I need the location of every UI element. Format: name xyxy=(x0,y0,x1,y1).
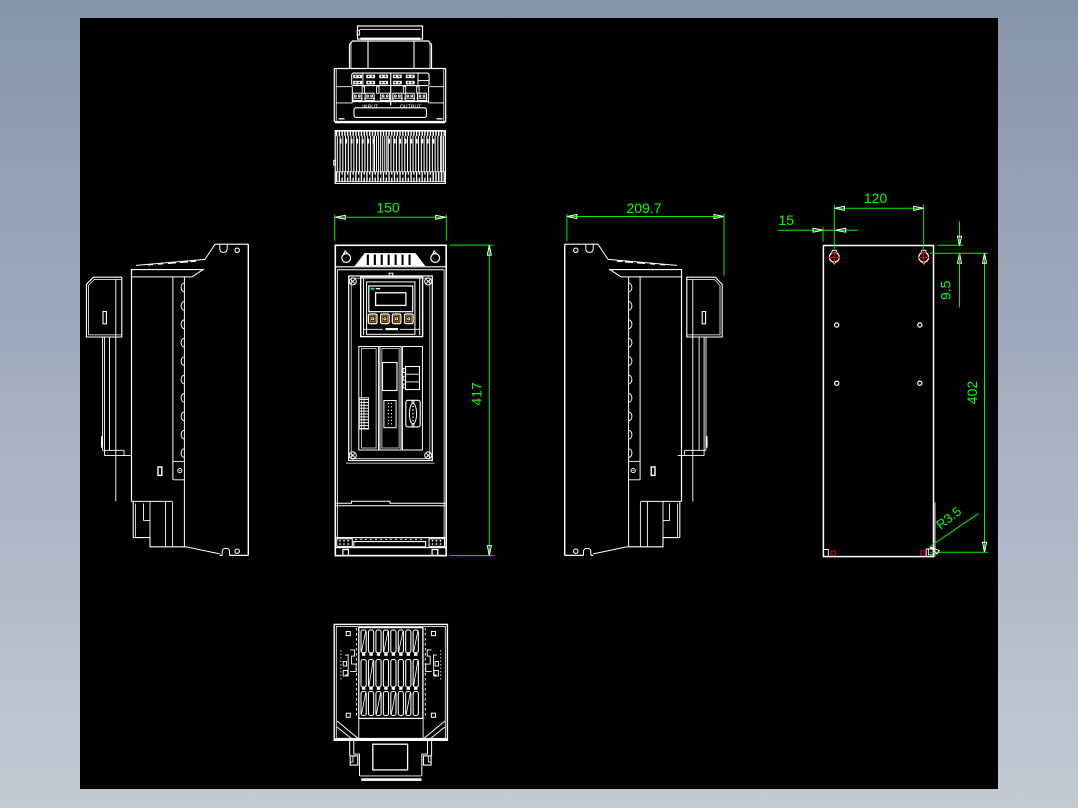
svg-text:R3.5: R3.5 xyxy=(933,504,964,533)
svg-text:150: 150 xyxy=(376,199,400,215)
svg-text:120: 120 xyxy=(864,190,888,206)
svg-text:417: 417 xyxy=(469,382,485,406)
svg-text:15: 15 xyxy=(779,212,795,228)
svg-text:209.7: 209.7 xyxy=(626,200,661,216)
svg-text:402: 402 xyxy=(964,381,980,405)
svg-text:9.5: 9.5 xyxy=(938,280,954,300)
